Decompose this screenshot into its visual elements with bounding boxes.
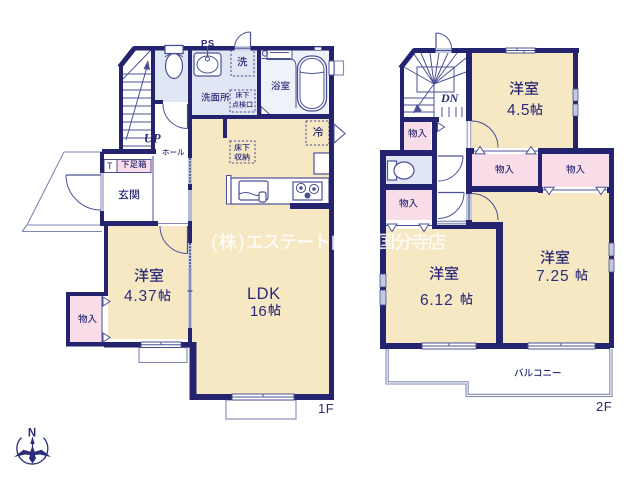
svg-text:16: 16: [250, 303, 267, 320]
svg-text:1F: 1F: [318, 401, 334, 416]
svg-text:7.25: 7.25: [536, 268, 569, 285]
svg-text:(: (: [211, 232, 218, 254]
svg-text:LDK: LDK: [247, 285, 281, 303]
svg-text:): ): [238, 232, 245, 254]
svg-text:UP: UP: [144, 132, 161, 146]
svg-text:2F: 2F: [596, 399, 612, 414]
svg-text:N: N: [28, 428, 36, 440]
svg-text:PS: PS: [201, 39, 215, 50]
svg-text:4.5: 4.5: [507, 102, 530, 119]
svg-text:6.12: 6.12: [420, 292, 453, 309]
svg-text:4.37: 4.37: [124, 288, 157, 305]
svg-text:T: T: [107, 161, 113, 171]
svg-text:DN: DN: [440, 91, 460, 105]
